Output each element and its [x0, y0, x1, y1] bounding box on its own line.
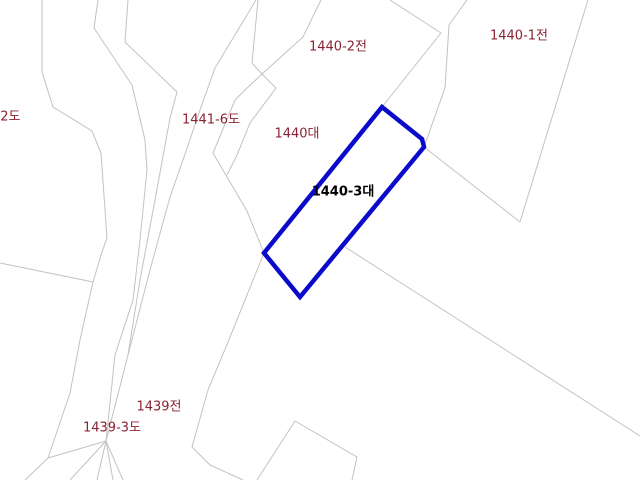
parcel-label: 1440대 [274, 127, 319, 142]
map-background [0, 0, 640, 480]
parcel-label: -2도 [0, 110, 20, 125]
cadastral-map-canvas[interactable]: -2도1441-6도1440대1440-2전1440-1전1440-3대1439… [0, 0, 640, 480]
parcel-label: 1439전 [136, 400, 181, 415]
selected-parcel-label: 1440-3대 [312, 185, 375, 200]
parcel-label: 1439-3도 [83, 421, 141, 436]
parcel-label: 1441-6도 [182, 113, 240, 128]
parcel-label: 1440-1전 [490, 29, 548, 44]
parcel-label: 1440-2전 [309, 40, 367, 55]
cadastral-map-svg: -2도1441-6도1440대1440-2전1440-1전1440-3대1439… [0, 0, 640, 480]
